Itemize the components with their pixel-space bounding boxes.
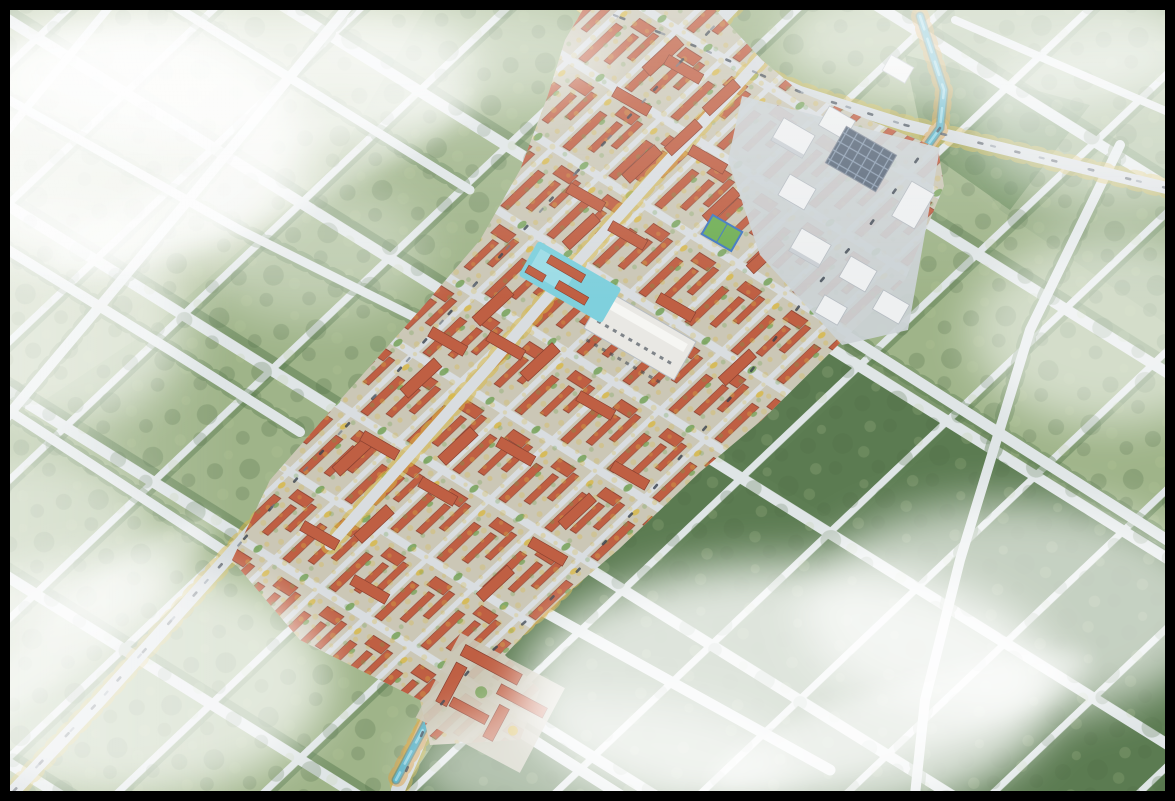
masterplan-scene (0, 0, 1175, 801)
aerial-rendering (0, 0, 1175, 801)
